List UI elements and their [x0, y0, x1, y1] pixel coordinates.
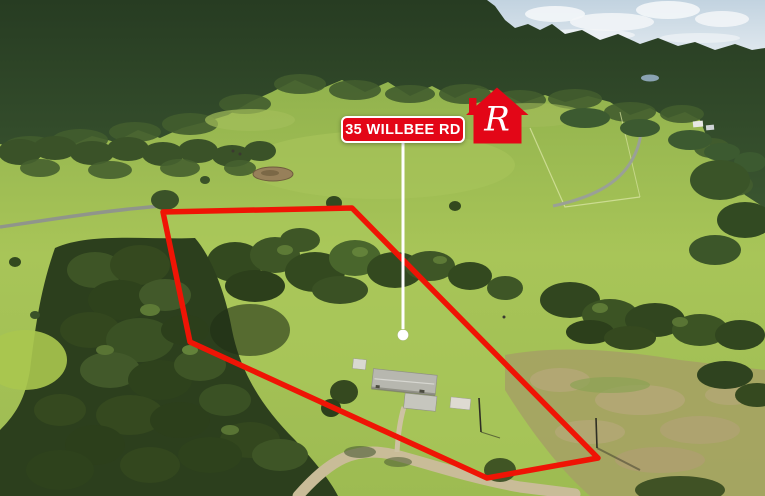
pointer-dot — [398, 330, 409, 341]
address-signboard: 35 WILLBEE RD — [341, 116, 465, 143]
marketing-overlay — [0, 0, 765, 496]
brand-letter: R — [483, 100, 510, 140]
property-boundary-outline — [163, 208, 598, 478]
brand-house-logo: R — [464, 85, 530, 146]
listing-photo: R 35 WILLBEE RD — [0, 0, 765, 496]
